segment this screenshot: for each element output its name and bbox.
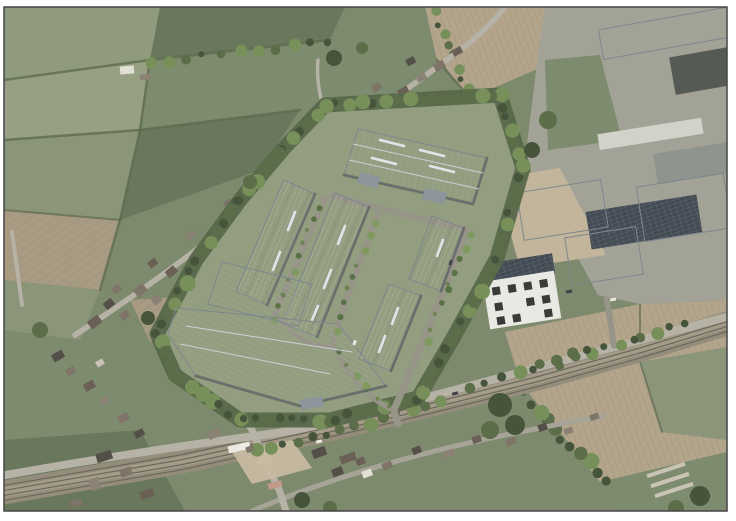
aerial-photomontage [0, 0, 736, 521]
tree [300, 415, 308, 423]
tree [271, 45, 281, 55]
tree [527, 400, 536, 409]
tree [157, 319, 166, 328]
tree [451, 328, 462, 339]
tree [366, 404, 376, 414]
tree [514, 365, 528, 379]
tree [323, 432, 330, 439]
tree [457, 256, 463, 262]
tree [681, 320, 689, 328]
tree [446, 282, 451, 287]
tree [355, 94, 370, 109]
tree [224, 411, 232, 419]
tree [342, 409, 352, 419]
tree [296, 253, 302, 259]
tree [600, 343, 607, 350]
tree [458, 76, 464, 82]
tree [164, 360, 175, 371]
tree [567, 348, 578, 359]
tree [372, 220, 379, 227]
tree [387, 405, 391, 409]
tree [565, 442, 575, 452]
tree [427, 93, 437, 103]
tree [173, 287, 181, 295]
tree [185, 267, 193, 275]
tree [456, 318, 464, 326]
tree [294, 438, 304, 448]
tree [214, 400, 222, 408]
tree [592, 468, 602, 478]
tree [616, 340, 627, 351]
tree [463, 245, 471, 253]
tree [175, 372, 186, 383]
field [4, 130, 140, 220]
tree [264, 412, 276, 424]
tree [441, 29, 451, 39]
tree [305, 228, 309, 232]
tree [364, 418, 378, 432]
tree [474, 284, 490, 300]
tree [265, 442, 278, 455]
tree [324, 39, 331, 46]
tree [306, 38, 314, 46]
tree [445, 41, 453, 49]
tree [512, 147, 525, 160]
tree [602, 476, 611, 485]
tree [354, 264, 358, 268]
tree [465, 383, 476, 394]
tree [331, 416, 341, 426]
tree [279, 441, 286, 448]
tree [434, 358, 444, 368]
tree [480, 272, 493, 285]
tree [190, 256, 199, 265]
tree [288, 414, 295, 421]
tree [504, 209, 511, 216]
tree [235, 45, 247, 57]
tree [428, 328, 432, 332]
tree [454, 64, 465, 75]
tree [435, 395, 447, 407]
tree [529, 366, 537, 374]
tree [666, 323, 673, 330]
tree [435, 22, 441, 28]
tree [308, 432, 317, 441]
tree [583, 346, 591, 354]
tree [481, 380, 488, 387]
tree [425, 338, 433, 346]
tree [446, 337, 457, 348]
tree [311, 216, 317, 222]
tree [341, 300, 347, 306]
tree [300, 241, 305, 246]
tree [162, 309, 173, 320]
tree [501, 113, 508, 120]
tree [212, 225, 224, 237]
tree [217, 50, 225, 58]
tree [497, 372, 506, 381]
tree [451, 94, 462, 105]
tree [350, 274, 356, 280]
tree [303, 119, 314, 130]
tree [505, 123, 519, 137]
tree [362, 247, 370, 255]
tree [198, 51, 204, 57]
tree [379, 95, 393, 109]
tree [403, 91, 418, 106]
tree [475, 88, 490, 103]
tree [367, 232, 375, 240]
tree [252, 414, 259, 421]
tree [497, 233, 508, 244]
tree [317, 205, 323, 211]
tree [498, 103, 507, 112]
tree [439, 94, 451, 106]
tree [445, 286, 452, 293]
tree [556, 436, 564, 444]
tree [501, 218, 515, 232]
tree [354, 405, 365, 416]
tree [534, 405, 549, 420]
tree [509, 137, 520, 148]
tree [291, 269, 299, 277]
tree [289, 39, 301, 51]
tree [343, 98, 356, 111]
tree [551, 355, 563, 367]
tree [233, 197, 240, 204]
tree [337, 314, 343, 320]
tree [452, 270, 458, 276]
tree [240, 415, 247, 422]
tree [574, 447, 587, 460]
page [0, 0, 736, 521]
tree [164, 56, 176, 68]
tree [463, 89, 476, 102]
tree [467, 232, 474, 239]
tree [494, 245, 506, 257]
tree [253, 45, 265, 57]
tree [287, 131, 301, 145]
tree [375, 397, 379, 401]
tree [181, 55, 191, 65]
tree [511, 186, 523, 198]
tree [226, 205, 237, 216]
tree [276, 414, 284, 422]
tree [631, 336, 639, 344]
tree [197, 247, 208, 258]
tree [146, 57, 158, 69]
tree [428, 367, 439, 378]
tree [180, 275, 196, 291]
tree [433, 312, 437, 316]
tree [345, 285, 350, 290]
tree [273, 147, 286, 160]
tree [439, 300, 445, 306]
tree [651, 327, 664, 340]
tree [319, 99, 333, 113]
tree [205, 236, 218, 249]
tree [160, 346, 173, 359]
